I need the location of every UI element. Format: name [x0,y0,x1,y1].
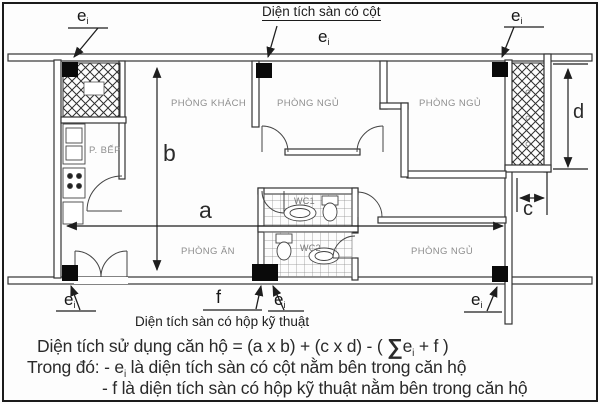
leader-e-top-middle [268,26,277,57]
formula-line1-suffix: + f ) [414,336,448,356]
sigma-symbol: ∑ [387,334,402,359]
label-e-top-left: ei [77,6,88,26]
formula-line2-suffix: là diện tích sàn có cột nằm bên trong că… [126,357,466,377]
leader-f [256,286,261,309]
column-top-left [62,62,78,77]
room-label-wc2: WC2 [300,243,321,253]
leader-e-bottom-right [487,287,497,311]
leader-e-top-left [74,28,98,57]
formula-line1-e: e [403,336,413,356]
shaft-fixture [84,82,104,95]
floor-plan-diagram: PHÒNG KHÁCH PHÒNG NGỦ PHÒNG NGỦ P. BẾP P… [0,0,600,404]
room-label-bedroom-topright: PHÒNG NGỦ [419,98,481,109]
label-e-bottom-left: ei [64,290,75,310]
column-top-middle [256,63,272,78]
column-bottom-left [62,265,78,281]
room-label-living: PHÒNG KHÁCH [171,98,246,109]
dimension-label-d: d [573,101,584,124]
room-label-kitchen: P. BẾP [89,145,121,156]
dimension-label-a: a [199,197,212,224]
formula-line1-prefix: Diện tích sử dụng căn hộ = (a x b) + (c … [37,336,387,356]
room-label-bedroom-middle: PHÒNG NGỦ [277,98,339,109]
formula-line-3: - f là diện tích sàn có hộp kỹ thuật nằm… [102,378,527,399]
room-label-dining: PHÒNG ĂN [181,246,235,257]
column-top-right [492,62,508,77]
formula-line2-prefix: Trong đó: - e [27,357,124,377]
loggia-hatch [512,63,544,165]
column-bottom-right [492,266,508,282]
label-e-bottom-right: ei [471,290,482,310]
dimension-label-c: c [523,198,533,221]
label-f: f [216,287,221,308]
note-column-area: Diện tích sàn có cột [262,4,381,21]
formula-line3-text: - f là diện tích sàn có hộp kỹ thuật nằm… [102,378,527,398]
label-e-top-middle: ei [318,27,329,47]
note-techbox-area: Diện tích sàn có hộp kỹ thuật [135,314,309,329]
dimension-label-b: b [163,140,176,167]
technical-box [252,264,278,281]
room-label-bedroom-botright: PHÒNG NGỦ [411,246,473,257]
leader-e-top-right [502,27,514,57]
label-e-top-right: ei [511,6,522,26]
room-label-wc1: WC1 [294,196,315,206]
formula-line-2: Trong đó: - ei là diện tích sàn có cột n… [27,357,466,380]
label-e-bottom-middle: ei [274,290,285,310]
